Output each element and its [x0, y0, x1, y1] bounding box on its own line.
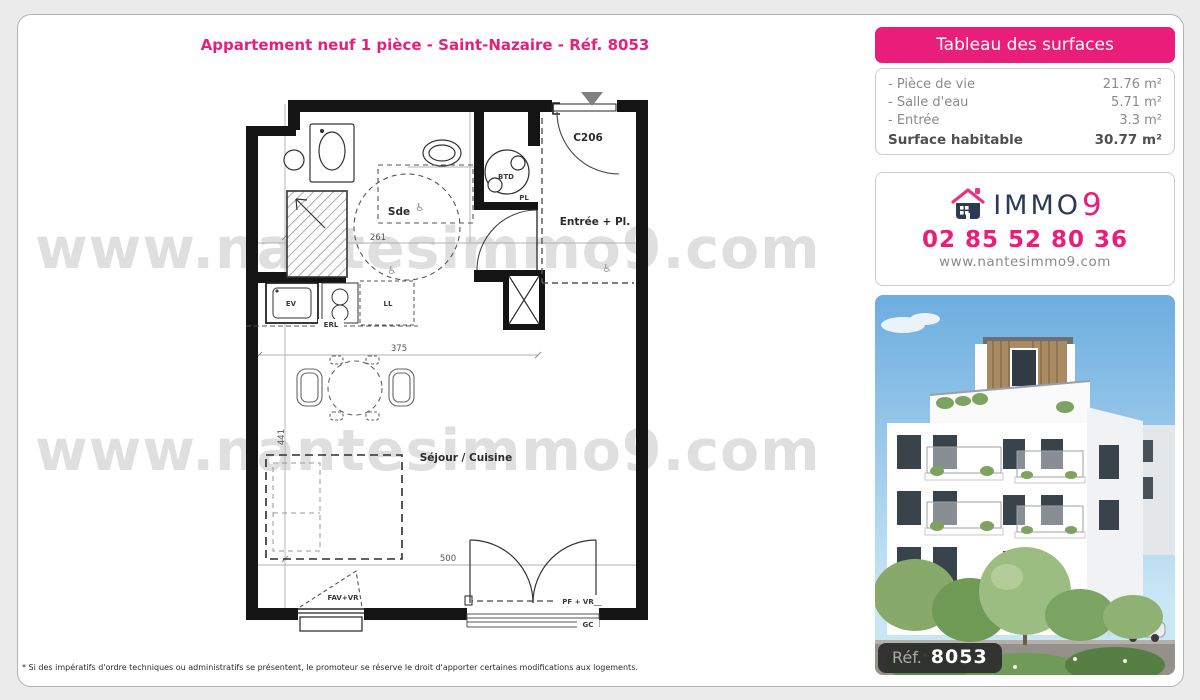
svg-text:♿: ♿ [387, 264, 397, 277]
dim-375: 375 [391, 344, 407, 354]
dimension-lines [246, 104, 636, 608]
agency-website: www.nantesimmo9.com [876, 254, 1174, 270]
svg-text:♿: ♿ [415, 201, 425, 214]
room-area: 21.76 m² [1103, 76, 1162, 94]
page-background: { "page": { "title": "Appartement neuf 1… [0, 0, 1200, 700]
total-label: Surface habitable [888, 130, 1023, 151]
room-name: - Entrée [888, 112, 939, 130]
room-label-sde: Sde [388, 206, 410, 218]
room-label-entree: Entrée + Pl. [560, 216, 630, 228]
fixture-label-fav: FAV+VR [327, 594, 359, 602]
table-row: - Salle d'eau 5.71 m² [888, 94, 1162, 112]
accessibility-clearance [354, 165, 473, 280]
photo-ref-badge: Réf. 8053 [878, 643, 1002, 673]
interior-door [477, 210, 537, 270]
dim-500: 500 [440, 554, 456, 564]
ref-number: 8053 [931, 646, 988, 668]
surfaces-header: Tableau des surfaces [875, 27, 1175, 63]
brand-name: IMMO [993, 190, 1081, 221]
agency-logo: IMMO9 [876, 186, 1174, 224]
dim-441: 441 [277, 429, 287, 445]
dining-table [297, 356, 414, 420]
agency-phone: 02 85 52 80 36 [876, 227, 1174, 253]
dim-261: 261 [370, 233, 386, 243]
floor-plan: ♿ ♿ ♿ [230, 85, 660, 645]
legal-footnote: * Si des impératifs d'ordre techniques o… [22, 663, 662, 672]
room-area: 5.71 m² [1111, 94, 1162, 112]
room-name: - Pièce de vie [888, 76, 975, 94]
brand-digit: 9 [1082, 187, 1102, 223]
fixture-label-ev: EV [286, 300, 297, 308]
shower [287, 191, 347, 277]
fixture-label-pf: PF + VR [562, 598, 594, 606]
unit-label: C206 [573, 132, 603, 144]
room-name: - Salle d'eau [888, 94, 968, 112]
hand-basin [284, 150, 304, 170]
fixture-label-ll: LL [384, 300, 393, 308]
ref-label: Réf. [892, 648, 922, 667]
bathroom-fixtures [284, 124, 529, 194]
room-area: 3.3 m² [1119, 112, 1162, 130]
wheelchair-icon: ♿ ♿ ♿ [387, 201, 612, 277]
fixture-label-pl: PL [519, 194, 529, 202]
page-title: Appartement neuf 1 pièce - Saint-Nazaire… [30, 36, 820, 54]
total-area: 30.77 m² [1095, 130, 1162, 151]
table-row: - Entrée 3.3 m² [888, 112, 1162, 130]
room-label-sejour: Séjour / Cuisine [420, 452, 513, 464]
house-logo-icon [948, 186, 990, 224]
building-photo [875, 295, 1175, 675]
table-row: - Pièce de vie 21.76 m² [888, 76, 1162, 94]
walls [246, 100, 648, 620]
bed-outline [266, 455, 402, 559]
table-total-row: Surface habitable 30.77 m² [888, 130, 1162, 151]
svg-text:♿: ♿ [602, 262, 612, 275]
fixture-label-gc: GC [583, 621, 594, 629]
agency-card: IMMO9 02 85 52 80 36 www.nantesimmo9.com [875, 172, 1175, 286]
surfaces-table: - Pièce de vie 21.76 m² - Salle d'eau 5.… [875, 68, 1175, 155]
technical-shaft [506, 273, 542, 327]
vanity-basin [319, 132, 345, 170]
fixture-label-erl: ERL [324, 321, 339, 329]
fixture-label-btd: BTD [498, 173, 514, 181]
